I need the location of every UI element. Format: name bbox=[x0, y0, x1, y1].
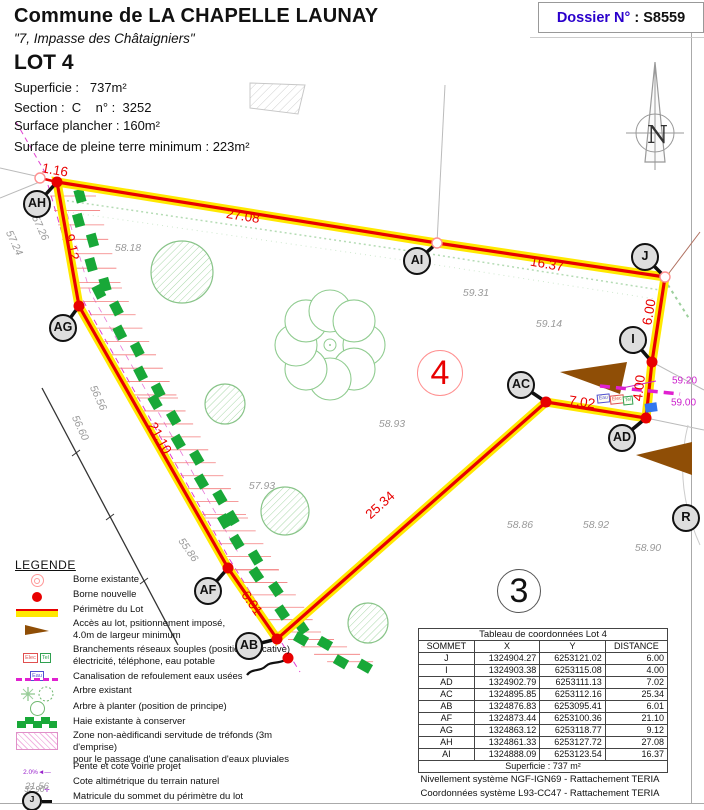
coordinates-table-footer: Superficie : 737 m² bbox=[419, 761, 668, 773]
borne-nouvelle-icon bbox=[32, 592, 42, 602]
legend: LEGENDE Borne existante Borne nouvelle P… bbox=[15, 558, 315, 572]
utility-marker-blue bbox=[645, 402, 658, 413]
elec-box-icon: Elec bbox=[23, 653, 38, 663]
footnote-coordonnees: Coordonnées système L93-CC47 - Rattachem… bbox=[380, 788, 700, 799]
surface-pleine-terre-line: Surface de pleine terre minimum : 223m² bbox=[14, 139, 250, 154]
coord-row-AG: AG1324863.126253118.779.12 bbox=[419, 725, 668, 737]
arbre-a-planter-icon bbox=[30, 701, 45, 716]
perimetre-icon bbox=[16, 609, 58, 618]
dossier-label: Dossier N° bbox=[557, 10, 631, 26]
borne-existante-point bbox=[35, 173, 45, 183]
address-subtitle: "7, Impasse des Châtaigniers" bbox=[14, 31, 195, 46]
tel-box-icon: Tel bbox=[40, 653, 51, 663]
coord-row-I: I1324903.386253115.084.00 bbox=[419, 665, 668, 677]
coord-row-AI: AI1324888.096253123.5416.37 bbox=[419, 749, 668, 761]
zone-non-aedificandi-icon bbox=[16, 732, 58, 750]
coordinates-table: Tableau de coordonnées Lot 4 SOMMETX YDI… bbox=[418, 628, 668, 773]
coordinates-table-header: SOMMETX YDISTANCE bbox=[419, 641, 668, 653]
dossier-box: Dossier N° : S8559 bbox=[538, 2, 704, 33]
superficie-line: Superficie : 737m² bbox=[14, 80, 127, 95]
canalisation-icon bbox=[16, 678, 58, 681]
section-line: Section : C n° : 3252 bbox=[14, 100, 151, 115]
coord-row-AH: AH1324861.336253127.7227.08 bbox=[419, 737, 668, 749]
dossier-number: : S8559 bbox=[630, 10, 685, 26]
coordinates-table-title: Tableau de coordonnées Lot 4 bbox=[419, 629, 668, 641]
north-compass: N bbox=[626, 62, 684, 170]
lot-number-4: 4 bbox=[417, 350, 463, 396]
coord-row-AD: AD1324902.796253111.137.02 bbox=[419, 677, 668, 689]
north-label: N bbox=[647, 121, 668, 149]
road-point-r: R bbox=[672, 504, 700, 532]
footnote-nivellement: Nivellement système NGF-IGN69 - Rattache… bbox=[380, 774, 700, 785]
matricule-icon: J bbox=[15, 791, 59, 810]
lot-number-3: 3 bbox=[497, 569, 541, 613]
tree-to-plant bbox=[275, 290, 385, 400]
surface-plancher-line: Surface plancher : 160m² bbox=[14, 118, 160, 133]
haie-icon bbox=[17, 716, 57, 729]
acces-arrow-icon bbox=[24, 622, 50, 636]
legend-title: LEGENDE bbox=[15, 558, 315, 572]
coord-row-AC: AC1324895.856253112.1625.34 bbox=[419, 689, 668, 701]
coord-row-AF: AF1324873.446253100.3621.10 bbox=[419, 713, 668, 725]
survey-plan-page: Commune de LA CHAPELLE LAUNAY "7, Impass… bbox=[0, 0, 704, 810]
lot-title: LOT 4 bbox=[14, 51, 74, 75]
coord-row-AB: AB1324876.836253095.416.01 bbox=[419, 701, 668, 713]
borne-existante-icon bbox=[31, 574, 44, 587]
coord-row-J: J1324904.276253121.026.00 bbox=[419, 653, 668, 665]
page-title: Commune de LA CHAPELLE LAUNAY bbox=[14, 5, 378, 28]
